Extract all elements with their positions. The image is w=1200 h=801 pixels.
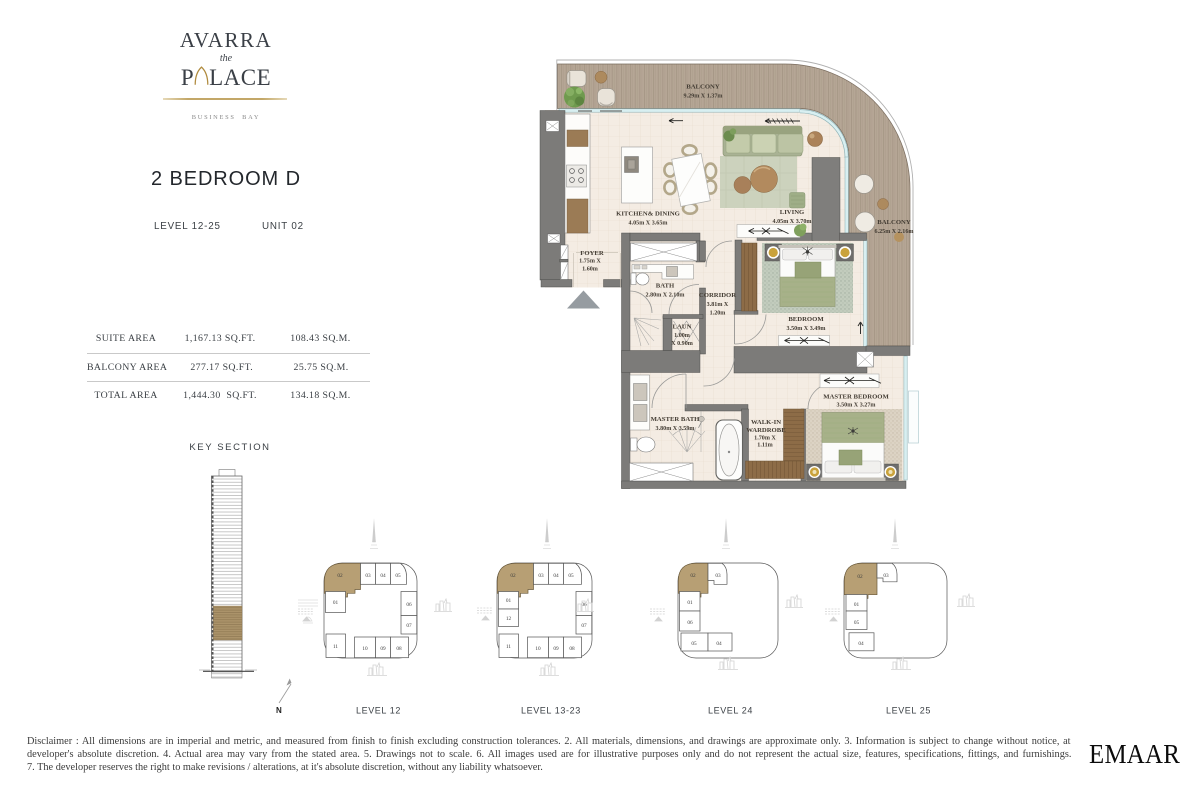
svg-text:04: 04 — [858, 641, 864, 647]
svg-text:10: 10 — [362, 646, 368, 652]
svg-text:01: 01 — [333, 600, 339, 606]
svg-text:3.50m X 3.27m: 3.50m X 3.27m — [837, 403, 876, 409]
svg-text:08: 08 — [396, 646, 402, 652]
svg-text:04: 04 — [380, 573, 386, 579]
svg-text:LIVING: LIVING — [780, 209, 805, 216]
svg-text:X 0.90m: X 0.90m — [671, 341, 693, 347]
svg-text:01: 01 — [506, 598, 512, 604]
svg-text:03: 03 — [538, 573, 544, 579]
svg-text:01: 01 — [854, 602, 860, 608]
svg-text:MASTER BATH: MASTER BATH — [651, 416, 701, 423]
svg-text:4.05m X 3.70m: 4.05m X 3.70m — [773, 219, 812, 225]
svg-text:07: 07 — [406, 623, 412, 629]
svg-text:3.81m X: 3.81m X — [707, 302, 729, 308]
svg-text:08: 08 — [569, 646, 575, 652]
svg-text:12: 12 — [506, 616, 512, 622]
svg-text:07: 07 — [581, 623, 587, 629]
svg-text:WARDROBE: WARDROBE — [746, 427, 786, 434]
svg-text:3.50m X 3.49m: 3.50m X 3.49m — [787, 326, 826, 332]
svg-text:BALCONY: BALCONY — [686, 84, 720, 91]
svg-text:05: 05 — [854, 620, 860, 626]
svg-text:02: 02 — [337, 573, 343, 579]
svg-text:10: 10 — [535, 646, 541, 652]
svg-text:CORRIDOR: CORRIDOR — [699, 292, 736, 299]
svg-text:03: 03 — [365, 573, 371, 579]
svg-text:02: 02 — [510, 573, 516, 579]
svg-text:04: 04 — [716, 641, 722, 647]
svg-text:11: 11 — [506, 644, 511, 650]
svg-text:05: 05 — [691, 641, 697, 647]
svg-text:11: 11 — [333, 644, 338, 650]
svg-text:WALK-IN: WALK-IN — [751, 419, 781, 426]
svg-text:05: 05 — [395, 573, 401, 579]
svg-text:9.29m X 1.37m: 9.29m X 1.37m — [684, 94, 723, 100]
svg-text:BALCONY: BALCONY — [877, 219, 911, 226]
svg-text:03: 03 — [715, 573, 721, 579]
svg-text:LEVEL 24: LEVEL 24 — [708, 706, 753, 716]
svg-text:6.25m X 2.16m: 6.25m X 2.16m — [875, 229, 914, 235]
svg-text:1.60m: 1.60m — [582, 267, 598, 273]
svg-text:04: 04 — [553, 573, 559, 579]
svg-text:1.70m X: 1.70m X — [754, 436, 776, 442]
svg-text:1.20m: 1.20m — [710, 311, 726, 317]
svg-text:02: 02 — [857, 574, 863, 580]
svg-text:02: 02 — [690, 573, 696, 579]
svg-text:BEDROOM: BEDROOM — [788, 316, 824, 323]
svg-text:1.00m: 1.00m — [674, 333, 690, 339]
svg-text:03: 03 — [883, 573, 889, 579]
svg-text:KITCHEN& DINING: KITCHEN& DINING — [616, 211, 681, 218]
svg-text:MASTER BEDROOM: MASTER BEDROOM — [823, 394, 889, 401]
svg-text:2.80m X 2.10m: 2.80m X 2.10m — [646, 293, 685, 299]
svg-text:3.80m X 3.59m: 3.80m X 3.59m — [656, 426, 695, 432]
svg-text:05: 05 — [568, 573, 574, 579]
svg-text:06: 06 — [406, 602, 412, 608]
svg-text:4.05m X 3.65m: 4.05m X 3.65m — [629, 221, 668, 227]
svg-text:1.11m: 1.11m — [757, 443, 772, 449]
svg-text:BATH: BATH — [656, 283, 675, 290]
svg-text:LAUN: LAUN — [673, 324, 692, 331]
svg-text:LEVEL 13-23: LEVEL 13-23 — [521, 706, 581, 716]
svg-text:LEVEL 12: LEVEL 12 — [356, 706, 401, 716]
svg-text:09: 09 — [380, 646, 386, 652]
svg-text:1.75m X: 1.75m X — [579, 259, 601, 265]
svg-text:LEVEL 25: LEVEL 25 — [886, 706, 931, 716]
svg-text:FOYER: FOYER — [580, 250, 604, 257]
svg-text:09: 09 — [553, 646, 559, 652]
svg-text:01: 01 — [687, 600, 693, 606]
svg-text:06: 06 — [687, 620, 693, 626]
